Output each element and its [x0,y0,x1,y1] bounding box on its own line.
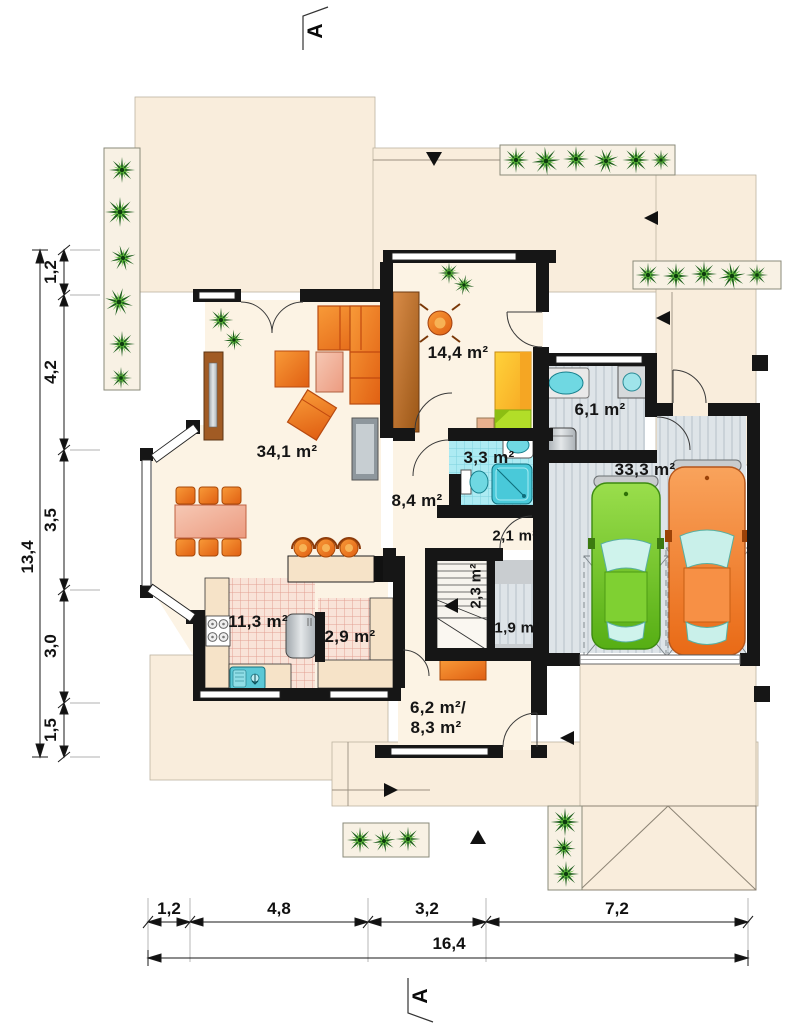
room-label-bath: 3,3 m² [464,448,515,468]
floor-plan: A A 34,1 m² 14,4 m² 8,4 m² 3,3 m² 2,1 m²… [0,0,800,1028]
dim-bottom-3: 7,2 [605,899,629,919]
room-label-storage: 1,9 m² [494,620,539,637]
car-green [588,476,664,649]
garage-roof-outline [580,806,756,890]
room-label-office: 14,4 m² [428,343,489,363]
kitchen-island [288,556,387,582]
floor-plan-graphics [0,0,800,1028]
bed [495,352,531,432]
cooktop [206,616,230,646]
dim-bottom-0: 1,2 [157,899,181,919]
room-label-wardrobe: 2,1 m² [492,528,537,545]
room-label-garage: 33,3 m² [615,460,676,480]
kitchen-sink [230,667,265,690]
section-marker-bottom: A [409,988,433,1003]
dim-bottom-2: 3,2 [415,899,439,919]
car-orange [665,460,749,655]
dining-table [175,505,246,538]
utility-sink [545,368,589,398]
section-marker-top: A [304,23,328,38]
room-label-living: 34,1 m² [257,442,318,462]
dining-set [175,487,246,556]
room-label-hall: 8,4 m² [392,491,443,511]
room-label-utility: 6,1 m² [575,400,626,420]
toilet [461,470,488,494]
washing-machine [618,366,646,398]
room-label-kitchen: 11,3 m² [228,612,288,632]
tv-unit [352,418,378,480]
dim-bottom-1: 4,8 [267,899,291,919]
room-label-pantry: 2,9 m² [325,627,376,647]
hall-cabinet [440,660,486,680]
fireplace [204,352,223,440]
storage-floor [495,560,533,656]
dim-left-2: 3,5 [41,508,61,532]
fridge [286,614,316,658]
desk [393,292,419,432]
room-label-vestibule-1: 6,2 m²/ [410,698,466,718]
dim-left-total: 13,4 [18,540,38,573]
coffee-table [316,352,343,392]
shower [492,464,532,504]
dim-left-4: 1,5 [41,718,61,742]
room-label-stairs: 2,3 m² [468,563,485,608]
dim-left-3: 3,0 [41,634,61,658]
dim-bottom-total: 16,4 [432,934,465,954]
dim-left-1: 4,2 [41,360,61,384]
armchair [275,351,309,387]
dim-left-0: 1,2 [41,260,61,284]
room-label-vestibule-2: 8,3 m² [411,718,462,738]
bar-stools [292,538,360,557]
garage-door [580,655,740,664]
